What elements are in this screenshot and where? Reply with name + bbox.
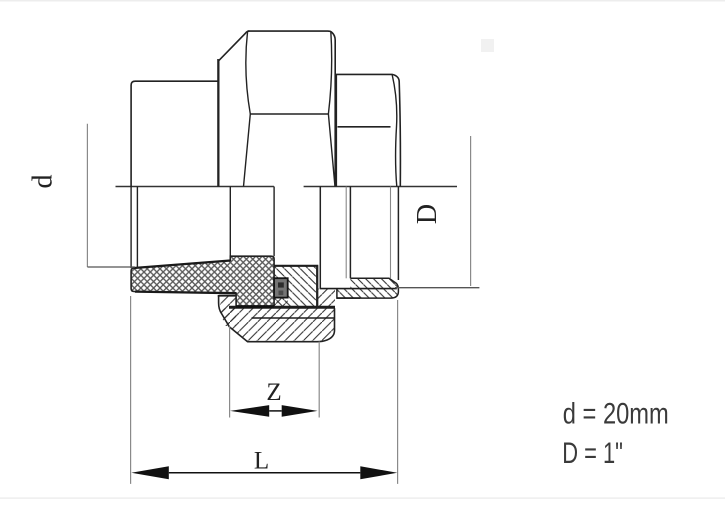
svg-text:D = 1": D = 1" xyxy=(562,435,623,469)
svg-text:L: L xyxy=(254,448,269,475)
svg-text:d: d xyxy=(28,175,59,189)
svg-text:d = 20mm: d = 20mm xyxy=(563,397,669,430)
svg-text:D: D xyxy=(412,204,443,224)
svg-text:Z: Z xyxy=(266,379,281,406)
